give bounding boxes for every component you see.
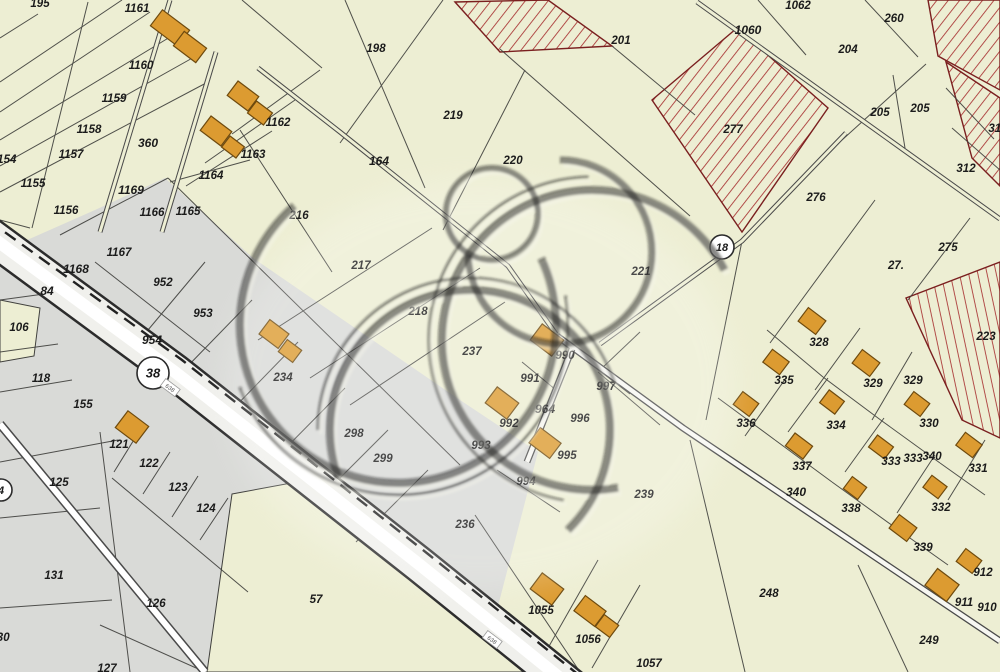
parcel-label: 360 xyxy=(138,136,158,150)
parcel-label: 333 xyxy=(903,453,923,465)
parcel-label: 130 xyxy=(0,632,10,644)
road-badge-number: 4 xyxy=(0,485,4,497)
parcel-label: 1056 xyxy=(575,634,601,646)
parcel-label: 1163 xyxy=(241,149,266,161)
parcel-label: 57 xyxy=(310,594,323,606)
parcel-label: 236 xyxy=(454,519,475,531)
road-badge-number: 18 xyxy=(716,242,729,254)
parcel-label: 205 xyxy=(909,103,930,115)
parcel-label: 1168 xyxy=(63,262,89,276)
parcel-label: 1057 xyxy=(636,658,662,670)
parcel-label: 1160 xyxy=(129,60,154,72)
parcel-label: 221 xyxy=(630,266,650,278)
parcel-label: 334 xyxy=(826,420,846,432)
road-badge: 18 xyxy=(710,235,734,259)
parcel-label: 1165 xyxy=(176,206,201,218)
map-canvas[interactable]: 1951161116011591158115711541155115636011… xyxy=(0,0,1000,672)
parcel-label: 952 xyxy=(153,277,173,289)
parcel-label: 339 xyxy=(913,542,933,554)
parcel-label: 220 xyxy=(502,155,523,167)
parcel-label: 312 xyxy=(956,163,976,175)
parcel-label: 125 xyxy=(49,477,69,489)
parcel-label: 1157 xyxy=(59,149,84,161)
parcel-label: 131 xyxy=(44,570,63,582)
parcel-label: 260 xyxy=(883,13,904,25)
parcel-label: 1055 xyxy=(528,605,554,617)
parcel-label: 996 xyxy=(570,413,590,425)
parcel-label: 336 xyxy=(736,418,756,430)
parcel-label: 313 xyxy=(988,123,1000,135)
parcel-label: 1162 xyxy=(266,117,291,129)
parcel-label: 1167 xyxy=(107,247,132,259)
parcel-label: 964 xyxy=(535,402,555,416)
parcel-label: 995 xyxy=(557,450,577,462)
parcel-label: 234 xyxy=(272,372,293,384)
parcel-label: 991 xyxy=(520,373,539,385)
parcel-label: 997 xyxy=(596,381,616,393)
parcel-label: 122 xyxy=(139,458,159,470)
parcel-label: 239 xyxy=(633,489,654,501)
parcel-label: 332 xyxy=(931,502,951,514)
parcel-label: 198 xyxy=(366,43,386,55)
parcel-label: 1166 xyxy=(140,207,165,219)
parcel-label: 219 xyxy=(442,110,463,122)
parcel-label: 330 xyxy=(919,418,939,430)
parcel-label: 218 xyxy=(407,306,428,318)
parcel-label: 276 xyxy=(805,192,826,204)
parcel-label: 201 xyxy=(610,35,630,47)
parcel-label: 329 xyxy=(903,375,923,387)
parcel-label: 1159 xyxy=(102,93,127,105)
parcel-label: 155 xyxy=(73,399,93,411)
parcel-label: 340 xyxy=(922,451,942,463)
parcel-label: 1169 xyxy=(118,183,144,197)
road-badge-number: 38 xyxy=(146,365,161,380)
parcel-label: 953 xyxy=(193,308,213,320)
parcel-label: 195 xyxy=(30,0,50,10)
parcel-label: 124 xyxy=(196,503,216,515)
parcel-label: 1161 xyxy=(125,3,150,15)
parcel-label: 911 xyxy=(955,597,973,609)
parcel-label: 340 xyxy=(786,485,806,499)
parcel-label: 329 xyxy=(863,378,883,390)
parcel-label: 299 xyxy=(372,453,393,465)
parcel-label: 328 xyxy=(809,337,829,349)
parcel-label: 338 xyxy=(841,503,861,515)
parcel-label: 912 xyxy=(973,567,993,579)
parcel-label: 121 xyxy=(109,439,128,451)
parcel-label: 248 xyxy=(758,588,779,600)
parcel-label: 27. xyxy=(887,260,904,272)
parcel-label: 331 xyxy=(968,463,987,475)
parcel-label: 237 xyxy=(461,346,482,358)
parcel-label: 1164 xyxy=(199,170,224,182)
parcel-label: 1060 xyxy=(735,23,762,37)
parcel-label: 275 xyxy=(937,242,958,254)
parcel-label: 164 xyxy=(369,154,389,168)
parcel-label: 337 xyxy=(792,461,812,473)
parcel-label: 333 xyxy=(881,456,901,468)
parcel-label: 277 xyxy=(722,124,743,136)
parcel-label: 1158 xyxy=(77,124,102,136)
parcel-label: 993 xyxy=(471,440,491,452)
parcel-label: 249 xyxy=(918,635,939,647)
parcel-label: 84 xyxy=(40,284,54,298)
parcel-label: 205 xyxy=(869,107,890,119)
parcel-label: 217 xyxy=(350,260,371,272)
parcel-label: 910 xyxy=(977,602,997,614)
parcel-label: 992 xyxy=(499,418,519,430)
parcel-label: 1156 xyxy=(54,205,79,217)
parcel-label: 223 xyxy=(975,331,996,343)
map-viewport[interactable]: 1951161116011591158115711541155115636011… xyxy=(0,0,1000,672)
parcel-label: 335 xyxy=(774,375,794,387)
parcel-label: 106 xyxy=(9,322,29,334)
parcel-label: 954 xyxy=(142,333,162,347)
parcel-label: 994 xyxy=(516,476,536,488)
parcel-label: 216 xyxy=(288,210,309,222)
parcel-label: 298 xyxy=(343,428,364,440)
parcel-label: 126 xyxy=(146,598,166,610)
parcel-label: 123 xyxy=(168,482,188,494)
parcel-label: 118 xyxy=(32,373,51,385)
parcel-label: 1154 xyxy=(0,154,17,166)
parcel-label: 1155 xyxy=(21,178,46,190)
parcel-label: 1062 xyxy=(785,0,811,12)
parcel-label: 990 xyxy=(555,350,575,362)
parcel-label: 127 xyxy=(97,663,117,672)
parcel-label: 204 xyxy=(837,44,858,56)
